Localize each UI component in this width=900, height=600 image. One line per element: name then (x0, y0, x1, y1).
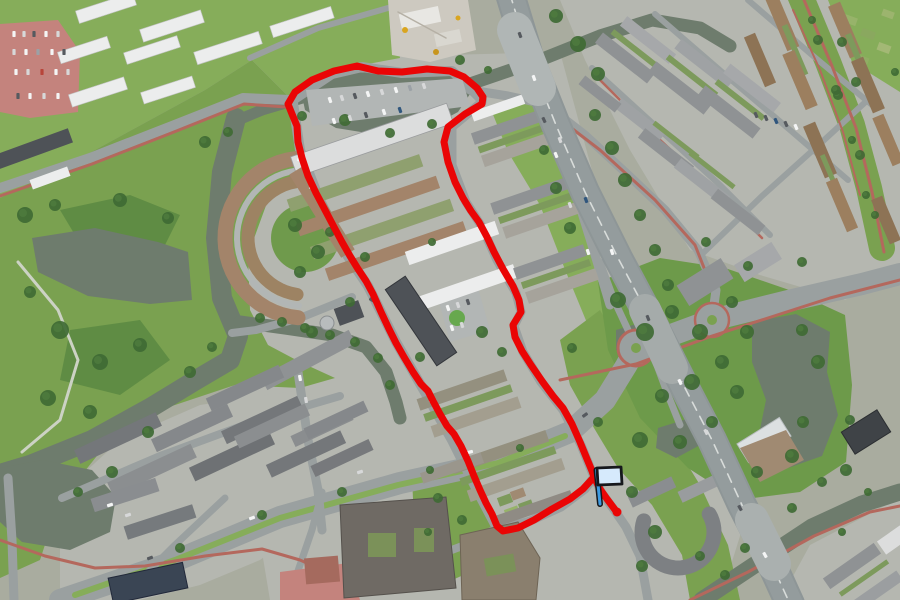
aerial-map-viewport[interactable] (0, 0, 900, 600)
satellite-map[interactable] (0, 0, 900, 600)
satellite-imagery-layer (0, 0, 900, 600)
